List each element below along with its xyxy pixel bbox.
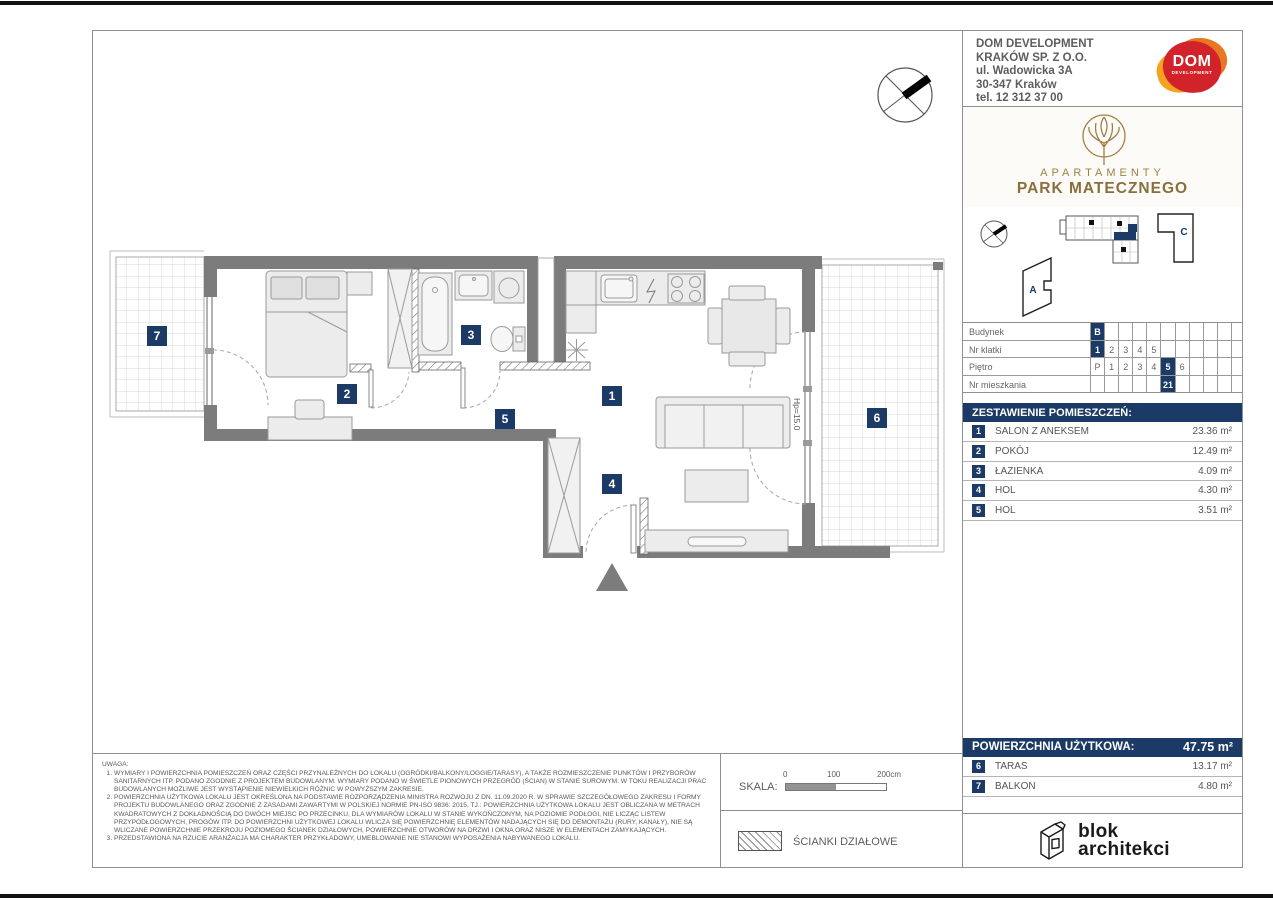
svg-text:7: 7 xyxy=(154,329,161,343)
scale-bar xyxy=(785,783,887,791)
room-number-badge: 2 xyxy=(972,445,985,458)
room-number-badge: 3 xyxy=(972,465,985,478)
room-row: 4 HOL 4.30 m² xyxy=(963,481,1242,501)
room-badge-7: 7 xyxy=(147,326,167,346)
site-building-b xyxy=(1060,216,1138,263)
room-row: 6 TARAS 13.17 m² xyxy=(963,757,1242,777)
top-rule xyxy=(0,1,1273,5)
table-row: Nr mieszkania 21 xyxy=(963,376,1242,394)
room-badge-6: 6 xyxy=(867,408,887,428)
room-badge-3: 3 xyxy=(461,325,481,345)
svg-text:6: 6 xyxy=(874,411,881,425)
table-row: Budynek B xyxy=(963,323,1242,341)
dom-development-logo-icon: DOM DEVELOPMENT xyxy=(1155,36,1229,98)
room-row: 7 BALKON 4.80 m² xyxy=(963,777,1242,797)
room-row: 3 ŁAZIENKA 4.09 m² xyxy=(963,462,1242,482)
notes: UWAGA: WYMIARY I POWIERZCHNIA POMIESZCZE… xyxy=(92,753,720,868)
outdoor-list: 6 TARAS 13.17 m² 7 BALKON 4.80 m² xyxy=(963,757,1242,797)
svg-text:3: 3 xyxy=(468,328,475,342)
site-plan: C A xyxy=(963,207,1242,322)
total-area-label: POWIERZCHNIA UŻYTKOWA: xyxy=(972,741,1134,753)
entrance-arrow-icon xyxy=(596,563,628,591)
terrace-area xyxy=(822,259,944,552)
room-badge-5: 5 xyxy=(495,409,515,429)
svg-text:2: 2 xyxy=(344,387,351,401)
tree-icon xyxy=(1078,113,1130,169)
room-badge-4: 4 xyxy=(602,474,622,494)
architect-cube-icon xyxy=(1035,820,1069,862)
rooms-list: 1 SALON Z ANEKSEM 23.36 m² 2 POKÓJ 12.49… xyxy=(963,422,1242,521)
room-number-badge: 5 xyxy=(972,504,985,517)
svg-text:C: C xyxy=(1180,227,1187,238)
partition-hatch-swatch xyxy=(738,831,782,851)
room-row: 1 SALON Z ANEKSEM 23.36 m² xyxy=(963,422,1242,442)
room-number-badge: 6 xyxy=(972,760,985,773)
note-item: WYMIARY I POWIERZCHNIA POMIESZCZEŃ ORAZ … xyxy=(114,770,712,794)
svg-text:5: 5 xyxy=(502,412,509,426)
room-number-badge: 7 xyxy=(972,780,985,793)
site-building-a: A xyxy=(1023,258,1051,316)
north-arrow-icon xyxy=(878,68,932,122)
room-badge-1: 1 xyxy=(602,386,622,406)
total-area-bar: POWIERZCHNIA UŻYTKOWA: 47.75 m² xyxy=(963,738,1242,757)
notes-title: UWAGA: xyxy=(102,761,712,769)
location-table: Budynek B Nr klatki 1 2 3 4 5 Pięt xyxy=(963,322,1242,392)
table-row: Nr klatki 1 2 3 4 5 xyxy=(963,341,1242,359)
floor-plan: Hp=15.0 1 2 3 4 5 6 7 xyxy=(92,30,962,753)
svg-text:4: 4 xyxy=(609,477,616,491)
legend-box: ŚCIANKI DZIAŁOWE xyxy=(720,810,962,868)
table-row: Piętro P 1 2 3 4 5 6 xyxy=(963,358,1242,376)
floorplan-sheet: Hp=15.0 1 2 3 4 5 6 7 DOM DEVELOPMENT KR… xyxy=(0,0,1273,900)
site-north-arrow-icon xyxy=(981,221,1007,247)
note-item: PRZEDSTAWIONA NA RZUCIE ARANŻACJA MA CHA… xyxy=(114,835,712,843)
scale-label: SKALA: xyxy=(739,781,778,793)
svg-text:A: A xyxy=(1029,285,1036,296)
legend-label: ŚCIANKI DZIAŁOWE xyxy=(793,836,898,848)
rooms-header: ZESTAWIENIE POMIESZCZEŃ: xyxy=(963,403,1242,422)
shaft xyxy=(538,258,554,365)
brand-name: PARK MATECZNEGO xyxy=(963,180,1242,198)
room-number-badge: 1 xyxy=(972,425,985,438)
site-building-c: C xyxy=(1158,214,1193,262)
room-number-badge: 4 xyxy=(972,484,985,497)
project-logo: APARTAMENTY PARK MATECZNEGO xyxy=(963,106,1242,207)
architect-logo: blok architekci xyxy=(963,814,1242,868)
svg-text:1: 1 xyxy=(609,389,616,403)
bottom-rule xyxy=(0,894,1273,898)
room-row: 5 HOL 3.51 m² xyxy=(963,501,1242,521)
room-row: 2 POKÓJ 12.49 m² xyxy=(963,442,1242,462)
note-item: POWIERZCHNIA UŻYTKOWA LOKALU JEST OKREŚL… xyxy=(114,794,712,834)
hp-note: Hp=15.0 xyxy=(792,398,802,431)
spacer-row xyxy=(963,795,1242,814)
total-area-value: 47.75 m² xyxy=(1183,740,1233,754)
scale-box: SKALA: 0 100 200cm xyxy=(720,753,962,810)
room-badge-2: 2 xyxy=(337,384,357,404)
